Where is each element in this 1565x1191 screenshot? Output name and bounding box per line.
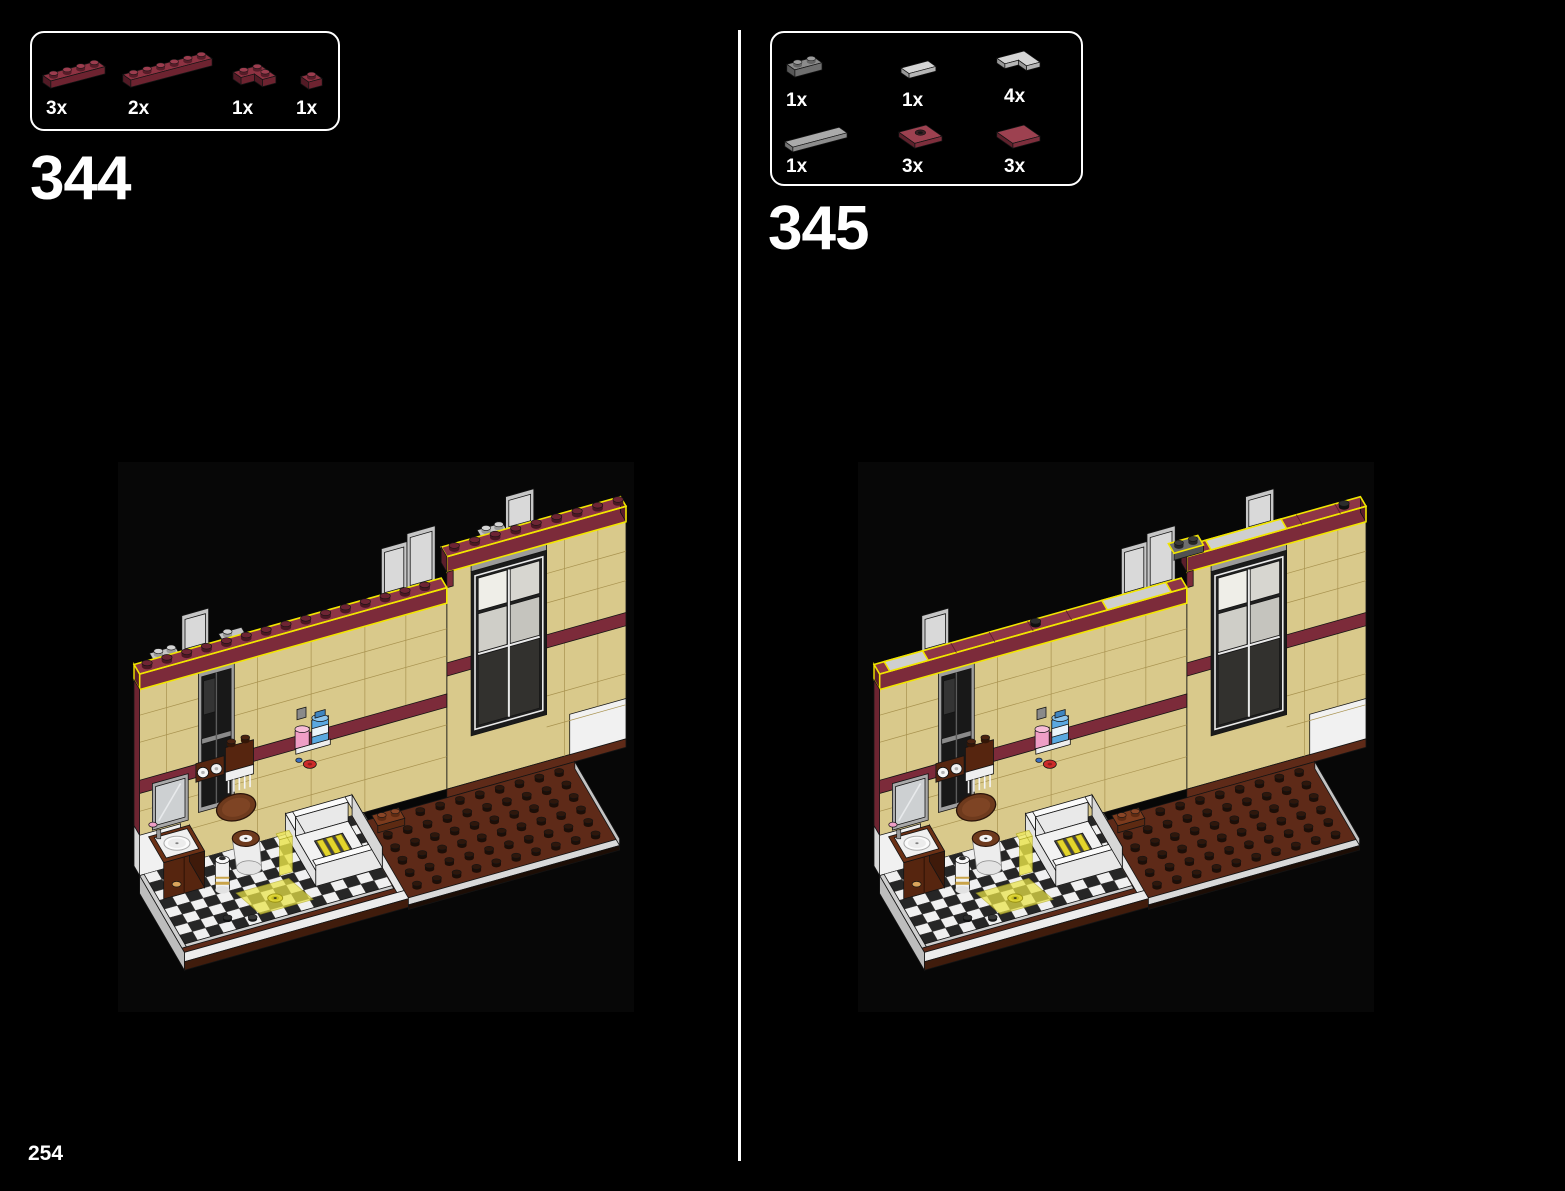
part-count-label: 1x: [786, 157, 807, 176]
step-344-parts-box: 3x2x1x1x: [30, 31, 340, 131]
step-345-parts-box: 1x1x4x1x3x3x: [770, 31, 1083, 186]
instruction-page: { "page": {"number": "254"}, "steps": [ …: [0, 0, 1565, 1191]
part-count-label: 1x: [902, 91, 923, 110]
tile-2x2-dark-red: [992, 113, 1056, 157]
part-count-label: 3x: [1004, 157, 1025, 176]
plate-2x2-corner-dark-red: [228, 53, 292, 99]
tile-1x2-light-gray: [896, 49, 952, 87]
plate-1x1-dark-red: [296, 61, 338, 98]
page-number: 254: [28, 1142, 63, 1166]
part-count-label: 2x: [128, 99, 149, 118]
plate-1x2-dark-gray: [782, 45, 838, 86]
tile-2x2-dark-red-icon: [992, 113, 1056, 157]
part-count-label: 4x: [1004, 87, 1025, 106]
plate-2x2-corner-dark-red-icon: [228, 53, 292, 99]
step-345-model-illustration: [858, 462, 1374, 1012]
plate-1x6-dark-red-icon: [118, 41, 228, 96]
part-count-label: 1x: [786, 91, 807, 110]
tile-2x2-corner-light-gray-icon: [992, 39, 1056, 83]
part-count-label: 1x: [232, 99, 253, 118]
step-344-number: 344: [30, 148, 130, 210]
part-count-label: 3x: [902, 157, 923, 176]
bathroom-module-isometric-view-345: [858, 462, 1374, 1012]
part-count-label: 3x: [46, 99, 67, 118]
tile-1x2-light-gray-icon: [896, 49, 952, 87]
tile-1x4-light-gray: [780, 115, 863, 161]
bathroom-module-isometric-view-344: [118, 462, 634, 1012]
plate-1x2-dark-gray-icon: [782, 45, 838, 86]
tile-1x4-light-gray-icon: [780, 115, 863, 161]
tile-2x2-corner-light-gray: [992, 39, 1056, 83]
plate-1x4-dark-red-icon: [38, 49, 121, 97]
part-count-label: 1x: [296, 99, 317, 118]
step-345-number: 345: [768, 198, 868, 260]
plate-1x1-dark-red-icon: [296, 61, 338, 98]
tile-2x2-center-stud-dark-red-icon: [894, 113, 958, 157]
plate-1x4-dark-red: [38, 49, 121, 97]
plate-1x6-dark-red: [118, 41, 228, 96]
tile-2x2-center-stud-dark-red: [894, 113, 958, 157]
step-344-model-illustration: [118, 462, 634, 1012]
column-divider: [738, 30, 741, 1161]
